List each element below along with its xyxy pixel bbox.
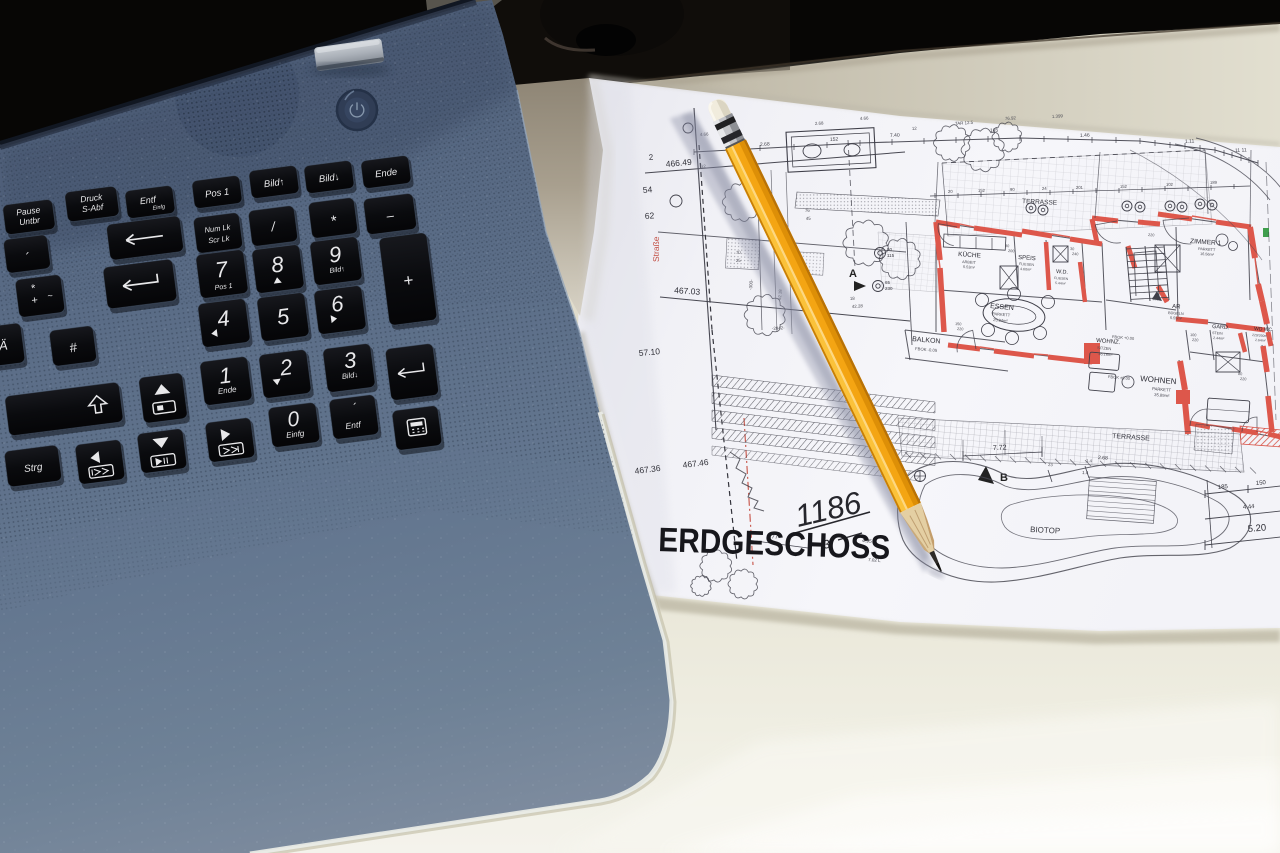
- svg-text:1.11: 1.11: [1185, 139, 1195, 145]
- svg-text:-300-: -300-: [748, 279, 754, 290]
- svg-text:240: 240: [1072, 252, 1079, 256]
- svg-text:62: 62: [644, 210, 654, 221]
- svg-text:7.40: 7.40: [890, 132, 900, 139]
- svg-text:BIOTOP: BIOTOP: [1030, 525, 1061, 536]
- svg-text:5.20: 5.20: [1247, 522, 1266, 535]
- svg-text:4.44: 4.44: [1243, 504, 1256, 511]
- svg-text:200: 200: [1008, 249, 1015, 253]
- svg-text:4.66: 4.66: [860, 115, 869, 121]
- svg-text:B: B: [1000, 472, 1008, 484]
- svg-text:2.64m²: 2.64m²: [1255, 338, 1267, 343]
- svg-text:AR: AR: [1172, 304, 1181, 311]
- svg-text:25: 25: [736, 258, 742, 263]
- svg-text:150: 150: [1256, 480, 1267, 487]
- svg-text:90: 90: [1010, 187, 1016, 192]
- svg-text:100: 100: [1152, 297, 1159, 301]
- svg-text:24: 24: [1042, 186, 1048, 191]
- svg-text:467.03: 467.03: [674, 285, 701, 297]
- svg-text:152: 152: [978, 188, 986, 193]
- svg-text:189: 189: [1210, 180, 1218, 185]
- svg-text:220: 220: [1192, 338, 1199, 342]
- svg-text:5.44m²: 5.44m²: [1055, 281, 1067, 286]
- svg-text:KÜCHE: KÜCHE: [958, 250, 982, 260]
- svg-text:ERDGESCHOSS: ERDGESCHOSS: [658, 521, 891, 567]
- svg-text:18: 18: [850, 296, 856, 301]
- svg-text:100: 100: [1190, 333, 1197, 337]
- svg-text:2.68: 2.68: [760, 141, 770, 148]
- svg-text:152: 152: [1120, 184, 1128, 189]
- svg-text:80: 80: [1005, 244, 1009, 248]
- svg-text:45: 45: [806, 216, 812, 221]
- svg-text:102: 102: [1166, 182, 1174, 187]
- svg-text:WD WC: WD WC: [1254, 326, 1273, 333]
- svg-text:150: 150: [955, 322, 962, 326]
- svg-text:70: 70: [736, 250, 742, 255]
- svg-text:201: 201: [1076, 185, 1084, 190]
- svg-text:GARD.: GARD.: [1212, 324, 1230, 331]
- svg-text:42.28: 42.28: [852, 303, 864, 309]
- svg-text:80: 80: [1238, 372, 1242, 376]
- svg-text:54: 54: [642, 184, 652, 195]
- svg-text:2.68: 2.68: [815, 120, 824, 126]
- svg-text:220: 220: [1240, 377, 1247, 381]
- svg-text:1.4: 1.4: [1086, 458, 1093, 463]
- svg-text:20: 20: [948, 189, 954, 194]
- svg-text:30: 30: [1070, 247, 1074, 251]
- svg-text:W.D.: W.D.: [1056, 269, 1069, 276]
- svg-text:57.10: 57.10: [638, 346, 660, 358]
- svg-text:220: 220: [957, 327, 964, 331]
- svg-text:2.68: 2.68: [1098, 455, 1108, 462]
- svg-text:1.399: 1.399: [1052, 113, 1064, 119]
- svg-text:1.46: 1.46: [1080, 132, 1090, 139]
- svg-text:A: A: [849, 268, 857, 280]
- svg-text:152: 152: [830, 137, 839, 143]
- svg-text:4.60m²: 4.60m²: [1020, 267, 1032, 272]
- svg-text:76.92: 76.92: [1005, 115, 1017, 121]
- svg-text:Straße: Straße: [651, 236, 661, 262]
- svg-text:12: 12: [912, 126, 918, 131]
- svg-text:2.44m²: 2.44m²: [1213, 336, 1225, 341]
- svg-text:185: 185: [1218, 484, 1229, 491]
- svg-text:220: 220: [1148, 233, 1155, 237]
- svg-text:76: 76: [805, 208, 811, 213]
- svg-text:-2842-: -2842-: [772, 325, 786, 331]
